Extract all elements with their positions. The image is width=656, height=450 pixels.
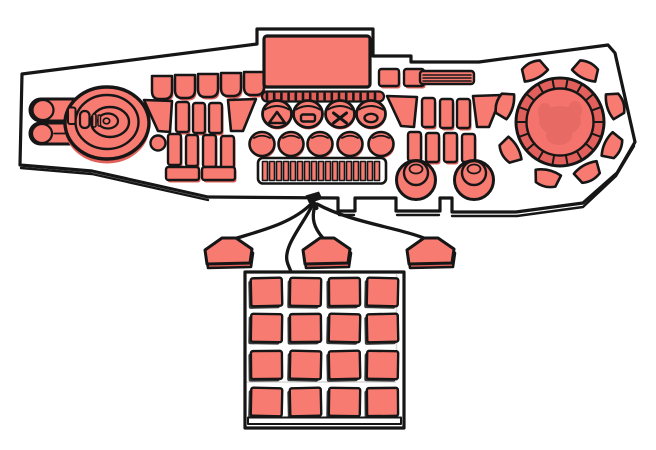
step-cell[interactable] [277, 162, 282, 181]
jog-wheel[interactable] [65, 87, 150, 164]
pad-button[interactable] [326, 351, 360, 382]
rotary-knob[interactable] [250, 132, 276, 158]
display-screen [264, 36, 370, 87]
pad-button[interactable] [364, 388, 398, 419]
step-cell[interactable] [375, 162, 380, 181]
pad-grid-bottom-strip [248, 418, 401, 425]
pad-button[interactable] [364, 351, 398, 382]
step-cell[interactable] [298, 162, 303, 181]
bar-button[interactable] [186, 135, 200, 169]
pad-button[interactable] [287, 388, 321, 419]
pad-button[interactable] [364, 314, 398, 345]
bar-button[interactable] [440, 99, 455, 131]
bar-button[interactable] [408, 132, 423, 164]
transport-button-triangle[interactable] [263, 101, 293, 130]
step-cell[interactable] [284, 162, 289, 181]
bar-button[interactable] [202, 167, 237, 183]
step-cell[interactable] [263, 162, 268, 181]
pad-button[interactable] [287, 351, 321, 382]
cable-to-middle-pedal [313, 206, 323, 238]
step-cell[interactable] [368, 162, 373, 181]
pad-button[interactable] [287, 278, 321, 309]
small-round-button[interactable] [151, 136, 166, 151]
pad-button[interactable] [364, 278, 398, 309]
ridged-bar [420, 71, 474, 84]
pad-button[interactable] [326, 314, 360, 345]
bar-button[interactable] [426, 133, 441, 165]
bar-button[interactable] [444, 133, 459, 165]
illustration-canvas [0, 0, 656, 450]
step-cell[interactable] [270, 162, 275, 181]
step-cell[interactable] [312, 162, 317, 181]
dome-knob[interactable] [455, 161, 494, 200]
step-cell[interactable] [361, 162, 366, 181]
foot-pedals [205, 238, 455, 268]
step-cell[interactable] [326, 162, 331, 181]
wheel-tick-2 [98, 115, 101, 126]
rotary-knob[interactable] [308, 132, 334, 158]
bar-button[interactable] [221, 136, 236, 171]
pad-button[interactable] [326, 388, 360, 419]
transport-button-cross[interactable] [326, 101, 356, 130]
step-strip[interactable] [258, 158, 386, 184]
rotary-knob[interactable] [279, 132, 305, 158]
bar-button[interactable] [379, 69, 401, 89]
pad-button[interactable] [248, 278, 282, 309]
transport-button-dash[interactable] [294, 101, 324, 130]
pad-button[interactable] [248, 351, 282, 382]
bar-button[interactable] [166, 167, 201, 183]
controller-illustration [0, 0, 656, 450]
bar-button[interactable] [457, 99, 472, 131]
knob-row [250, 132, 395, 158]
transport-button-circle[interactable] [357, 101, 387, 130]
dome-knob[interactable] [397, 161, 436, 200]
key-button[interactable] [152, 76, 174, 102]
step-cell[interactable] [319, 162, 324, 181]
bar-button[interactable] [193, 103, 207, 136]
pad-button[interactable] [326, 278, 360, 309]
step-cell[interactable] [340, 162, 345, 181]
pad-grid [245, 272, 404, 428]
foot-pedal[interactable] [407, 238, 455, 268]
pad-button[interactable] [287, 314, 321, 345]
bar-button[interactable] [176, 102, 191, 135]
bar-button[interactable] [209, 103, 224, 136]
step-cell[interactable] [333, 162, 338, 181]
pad-button[interactable] [248, 314, 282, 345]
foot-pedal[interactable] [303, 238, 351, 268]
foot-pedal[interactable] [205, 238, 253, 268]
pad-button[interactable] [248, 388, 282, 419]
key-button[interactable] [221, 73, 243, 99]
step-cell[interactable] [347, 162, 352, 181]
step-cell[interactable] [291, 162, 296, 181]
bar-button[interactable] [422, 98, 437, 130]
step-cell[interactable] [354, 162, 359, 181]
bar-button[interactable] [203, 135, 218, 170]
key-button[interactable] [175, 75, 197, 101]
wheel-side-button[interactable] [80, 111, 90, 128]
step-cell[interactable] [305, 162, 310, 181]
cable-to-left-pedal [234, 204, 311, 239]
rotary-knob[interactable] [338, 132, 364, 158]
key-button[interactable] [198, 74, 220, 100]
rotary-knob[interactable] [369, 132, 395, 158]
wheel-tick-1 [93, 114, 97, 127]
bar-button[interactable] [168, 134, 183, 168]
wheel-side-tab[interactable] [68, 108, 76, 125]
